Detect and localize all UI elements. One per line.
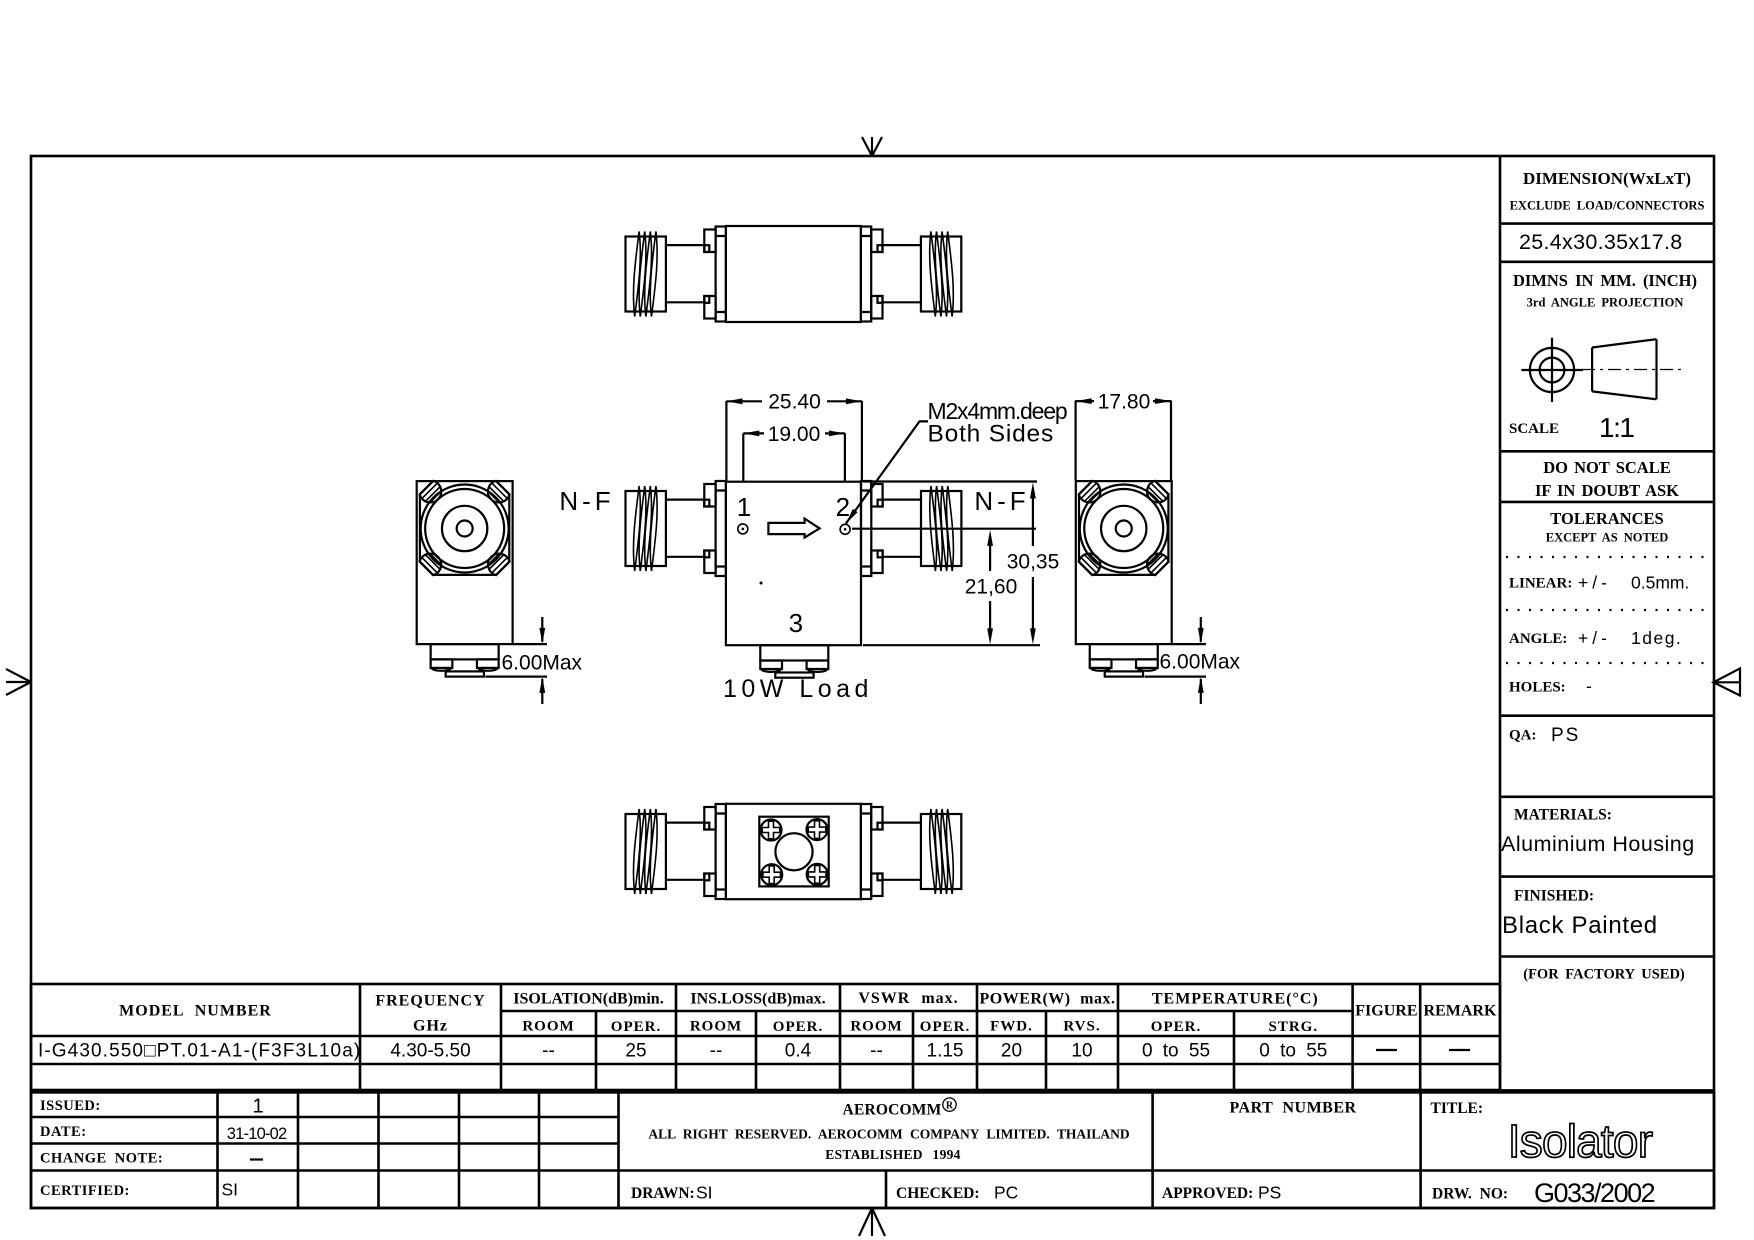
svg-text:--: -- xyxy=(542,1041,555,1062)
svg-text:ISOLATION(dB)min.: ISOLATION(dB)min. xyxy=(513,991,663,1008)
svg-text:ALL RIGHT RESERVED. AEROCOMM C: ALL RIGHT RESERVED. AEROCOMM COMPANY LIM… xyxy=(648,1127,1130,1142)
svg-text:REMARK: REMARK xyxy=(1424,1003,1497,1020)
svg-text:ROOM: ROOM xyxy=(690,1019,742,1035)
svg-text:N-F: N-F xyxy=(974,486,1029,516)
svg-text:R: R xyxy=(946,1101,954,1112)
svg-text:TOLERANCES: TOLERANCES xyxy=(1550,509,1663,528)
svg-text:TEMPERATURE(°C): TEMPERATURE(°C) xyxy=(1152,991,1319,1008)
svg-text:4.30-5.50: 4.30-5.50 xyxy=(390,1041,470,1062)
svg-text:31-10-02: 31-10-02 xyxy=(227,1125,287,1143)
svg-text:25: 25 xyxy=(625,1041,646,1062)
svg-text:6.00Max: 6.00Max xyxy=(502,652,583,675)
svg-text:20: 20 xyxy=(1001,1041,1022,1062)
svg-text:+/-: +/- xyxy=(1578,573,1611,593)
svg-text:--: -- xyxy=(710,1041,723,1062)
svg-text:HOLES:: HOLES: xyxy=(1509,680,1566,696)
svg-text:1deg.: 1deg. xyxy=(1631,628,1682,648)
svg-text:RVS.: RVS. xyxy=(1063,1019,1100,1035)
svg-text:EXCEPT AS NOTED: EXCEPT AS NOTED xyxy=(1546,531,1668,545)
svg-text:25.40: 25.40 xyxy=(768,391,821,414)
svg-text:FINISHED:: FINISHED: xyxy=(1514,888,1594,905)
svg-text:APPROVED:: APPROVED: xyxy=(1162,1185,1253,1202)
svg-text:PS: PS xyxy=(1258,1183,1281,1203)
svg-text:FWD.: FWD. xyxy=(990,1019,1033,1035)
svg-text:(FOR FACTORY USED): (FOR FACTORY USED) xyxy=(1523,967,1685,983)
svg-text:OPER.: OPER. xyxy=(611,1019,661,1035)
svg-text:ANGLE:: ANGLE: xyxy=(1509,631,1567,647)
svg-text:-: - xyxy=(1586,676,1592,696)
svg-text:QA:: QA: xyxy=(1509,728,1537,744)
svg-text:3: 3 xyxy=(789,608,803,638)
svg-text:Aluminium Housing: Aluminium Housing xyxy=(1501,832,1695,856)
svg-text:CHANGE NOTE:: CHANGE NOTE: xyxy=(40,1151,163,1167)
svg-text:MODEL NUMBER: MODEL NUMBER xyxy=(119,1003,272,1020)
svg-text:DRAWN:: DRAWN: xyxy=(631,1185,695,1202)
svg-text:I-G430.550□PT.01-A1-(F3F3L10a): I-G430.550□PT.01-A1-(F3F3L10a) xyxy=(38,1041,361,1062)
svg-text:DRW. NO:: DRW. NO: xyxy=(1432,1186,1508,1203)
svg-text:Both Sides: Both Sides xyxy=(928,421,1055,448)
svg-text:SCALE: SCALE xyxy=(1509,421,1559,437)
svg-text:DATE:: DATE: xyxy=(40,1124,87,1140)
svg-text:GHz: GHz xyxy=(413,1018,448,1035)
svg-text:25.4x30.35x17.8: 25.4x30.35x17.8 xyxy=(1519,230,1683,254)
svg-text:--: -- xyxy=(870,1041,883,1062)
svg-text:G033/2002: G033/2002 xyxy=(1534,1178,1655,1208)
svg-text:30,35: 30,35 xyxy=(1007,551,1060,574)
svg-text:PART NUMBER: PART NUMBER xyxy=(1229,1100,1356,1117)
svg-text:ROOM: ROOM xyxy=(850,1019,902,1035)
svg-text:OPER.: OPER. xyxy=(773,1019,823,1035)
svg-text:DIMNS IN MM. (INCH): DIMNS IN MM. (INCH) xyxy=(1513,271,1697,290)
svg-text:IF IN DOUBT ASK: IF IN DOUBT ASK xyxy=(1535,481,1679,500)
svg-text:1: 1 xyxy=(737,492,751,522)
svg-text:10W Load: 10W Load xyxy=(723,675,873,703)
svg-text:1:1: 1:1 xyxy=(1599,412,1634,443)
svg-text:STRG.: STRG. xyxy=(1268,1019,1318,1035)
svg-text:17.80: 17.80 xyxy=(1098,390,1151,413)
svg-text:19.00: 19.00 xyxy=(768,423,821,446)
svg-text:0 to 55: 0 to 55 xyxy=(1259,1041,1327,1062)
svg-text:ISSUED:: ISSUED: xyxy=(40,1098,101,1114)
svg-text:TITLE:: TITLE: xyxy=(1431,1100,1484,1117)
svg-text:CERTIFIED:: CERTIFIED: xyxy=(40,1183,130,1199)
svg-text:PC: PC xyxy=(994,1183,1018,1203)
svg-text:EXCLUDE LOAD/CONNECTORS: EXCLUDE LOAD/CONNECTORS xyxy=(1510,199,1705,213)
svg-text:2: 2 xyxy=(836,492,850,522)
svg-text:Isolator: Isolator xyxy=(1508,1115,1653,1167)
svg-text:VSWR max.: VSWR max. xyxy=(858,990,958,1007)
svg-text:1.15: 1.15 xyxy=(927,1041,964,1062)
svg-text:DIMENSION(WxLxT): DIMENSION(WxLxT) xyxy=(1523,169,1691,188)
svg-text:PS: PS xyxy=(1551,725,1580,746)
svg-text:Black Painted: Black Painted xyxy=(1502,912,1658,939)
svg-text:OPER.: OPER. xyxy=(1151,1019,1201,1035)
svg-text:0.4: 0.4 xyxy=(785,1041,812,1062)
svg-text:ESTABLISHED 1994: ESTABLISHED 1994 xyxy=(825,1147,960,1162)
svg-text:CHECKED:: CHECKED: xyxy=(896,1185,980,1202)
svg-text:DO NOT SCALE: DO NOT SCALE xyxy=(1543,458,1670,477)
svg-text:SI: SI xyxy=(696,1183,713,1203)
svg-text:FREQUENCY: FREQUENCY xyxy=(375,993,485,1010)
svg-text:FIGURE: FIGURE xyxy=(1355,1003,1417,1020)
svg-text:MATERIALS:: MATERIALS: xyxy=(1514,807,1612,824)
svg-text:N-F: N-F xyxy=(559,486,614,516)
svg-text:1: 1 xyxy=(252,1096,263,1118)
svg-text:AEROCOMM: AEROCOMM xyxy=(843,1102,942,1119)
svg-text:3rd ANGLE PROJECTION: 3rd ANGLE PROJECTION xyxy=(1527,296,1684,310)
svg-text:0 to 55: 0 to 55 xyxy=(1142,1041,1210,1062)
svg-text:POWER(W) max.: POWER(W) max. xyxy=(980,991,1116,1008)
svg-text:+/-: +/- xyxy=(1578,628,1611,648)
svg-text:21,60: 21,60 xyxy=(965,576,1018,599)
svg-text:0.5mm.: 0.5mm. xyxy=(1631,573,1689,593)
svg-text:INS.LOSS(dB)max.: INS.LOSS(dB)max. xyxy=(690,991,825,1008)
svg-text:LINEAR:: LINEAR: xyxy=(1509,576,1572,592)
svg-text:10: 10 xyxy=(1071,1041,1092,1062)
svg-text:6.00Max: 6.00Max xyxy=(1160,651,1241,674)
svg-text:ROOM: ROOM xyxy=(522,1019,574,1035)
svg-text:OPER.: OPER. xyxy=(920,1019,970,1035)
svg-text:SI: SI xyxy=(222,1180,239,1200)
